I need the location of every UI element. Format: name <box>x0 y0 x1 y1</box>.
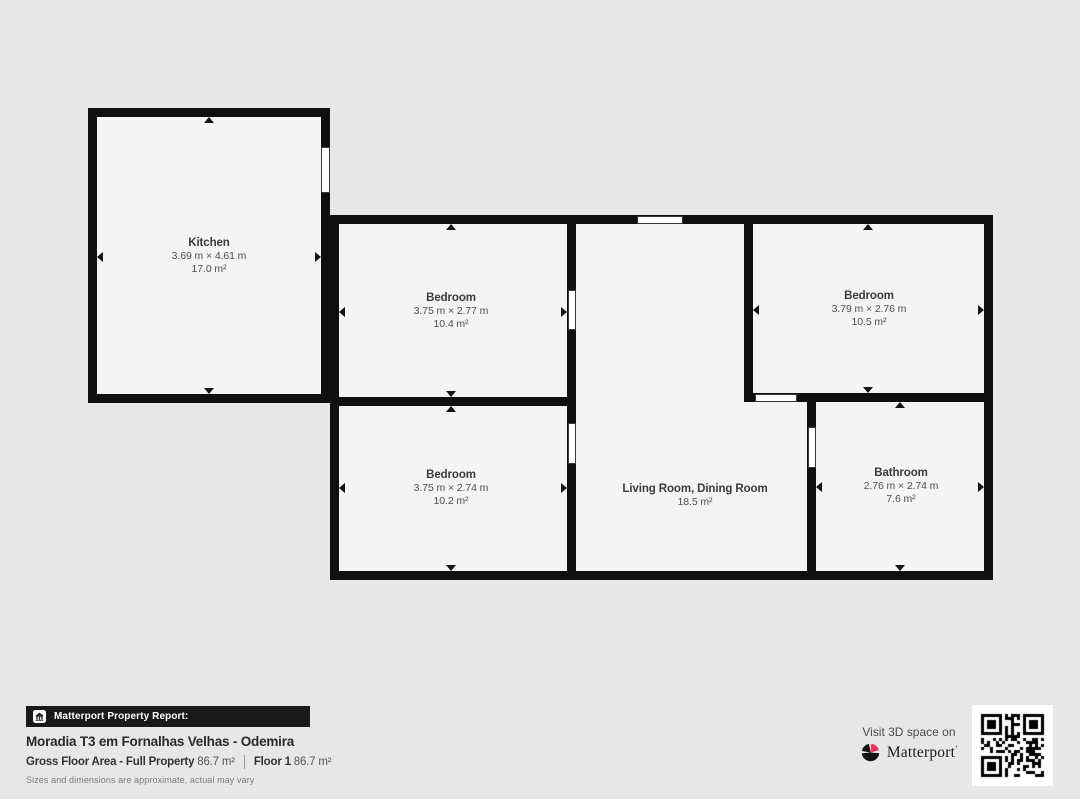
room-area: 10.2 m² <box>341 495 561 508</box>
dimension-arrow-up-icon <box>863 224 873 230</box>
dimension-arrow-right-icon <box>561 483 567 493</box>
dimension-arrow-down-icon <box>863 387 873 393</box>
disclaimer-note: Sizes and dimensions are approximate, ac… <box>26 775 254 785</box>
bathroom-door <box>808 427 816 468</box>
living-room-label: Living Room, Dining Room 18.5 m² <box>585 482 805 509</box>
room-dimensions: 3.75 m × 2.74 m <box>341 482 561 495</box>
room-name: Bedroom <box>341 291 561 305</box>
metric-divider <box>244 755 245 769</box>
bathroom-label: Bathroom 2.76 m × 2.74 m 7.6 m² <box>791 466 1011 506</box>
dimension-arrow-right-icon <box>561 307 567 317</box>
dimension-arrow-up-icon <box>895 402 905 408</box>
room-area: 10.5 m² <box>759 316 979 329</box>
room-dimensions: 3.69 m × 4.61 m <box>99 250 319 263</box>
room-area: 7.6 m² <box>791 493 1011 506</box>
bedroom-right-door <box>755 394 797 402</box>
kitchen-window <box>321 147 330 193</box>
floor-area-metrics: Gross Floor Area - Full Property 86.7 m²… <box>26 755 331 769</box>
report-badge: Matterport Property Report: <box>26 706 310 727</box>
visit-3d-space-cta: Visit 3D space on Matterport’ <box>860 725 958 763</box>
gross-floor-area-label: Gross Floor Area - Full Property <box>26 756 194 768</box>
room-area: 18.5 m² <box>585 496 805 509</box>
bedroom-bottom-label: Bedroom 3.75 m × 2.74 m 10.2 m² <box>341 468 561 508</box>
floor-plan: Kitchen 3.69 m × 4.61 m 17.0 m² Bedroom … <box>0 0 1080 799</box>
dimension-arrow-up-icon <box>446 224 456 230</box>
trademark-mark: ’ <box>955 744 958 753</box>
matterport-logo-icon <box>860 742 881 763</box>
report-badge-label: Matterport Property Report: <box>54 711 188 722</box>
kitchen-label: Kitchen 3.69 m × 4.61 m 17.0 m² <box>99 236 319 276</box>
matterport-logo: Matterport’ <box>860 742 958 763</box>
visit-3d-space-text: Visit 3D space on <box>862 725 955 739</box>
room-name: Bedroom <box>341 468 561 482</box>
floor-value: 86.7 m² <box>294 756 332 768</box>
room-name: Bedroom <box>759 289 979 303</box>
matterport-wordmark: Matterport’ <box>887 744 958 762</box>
room-area: 17.0 m² <box>99 263 319 276</box>
dimension-arrow-down-icon <box>895 565 905 571</box>
dimension-arrow-down-icon <box>204 388 214 394</box>
room-name: Living Room, Dining Room <box>585 482 805 496</box>
front-door-opening <box>637 216 683 224</box>
qr-code-card <box>972 705 1053 786</box>
room-dimensions: 3.75 m × 2.77 m <box>341 305 561 318</box>
room-name: Kitchen <box>99 236 319 250</box>
room-dimensions: 2.76 m × 2.74 m <box>791 480 1011 493</box>
floor-plan-report: { "colors":{"background":"#e7e7e7","wall… <box>0 0 1080 799</box>
gross-floor-area-value: 86.7 m² <box>197 756 235 768</box>
qr-code <box>980 713 1045 778</box>
dimension-arrow-up-icon <box>446 406 456 412</box>
room-dimensions: 3.79 m × 2.76 m <box>759 303 979 316</box>
property-title: Moradia T3 em Fornalhas Velhas - Odemira <box>26 734 294 749</box>
room-name: Bathroom <box>791 466 1011 480</box>
floor-label: Floor 1 <box>254 756 291 768</box>
bedroom-right-label: Bedroom 3.79 m × 2.76 m 10.5 m² <box>759 289 979 329</box>
dimension-arrow-up-icon <box>204 117 214 123</box>
bedroom-bottom-door <box>568 423 576 464</box>
bedroom-top-label: Bedroom 3.75 m × 2.77 m 10.4 m² <box>341 291 561 331</box>
bedroom-top-door <box>568 290 576 330</box>
room-area: 10.4 m² <box>341 318 561 331</box>
property-house-icon <box>33 710 46 723</box>
dimension-arrow-down-icon <box>446 565 456 571</box>
dimension-arrow-down-icon <box>446 391 456 397</box>
